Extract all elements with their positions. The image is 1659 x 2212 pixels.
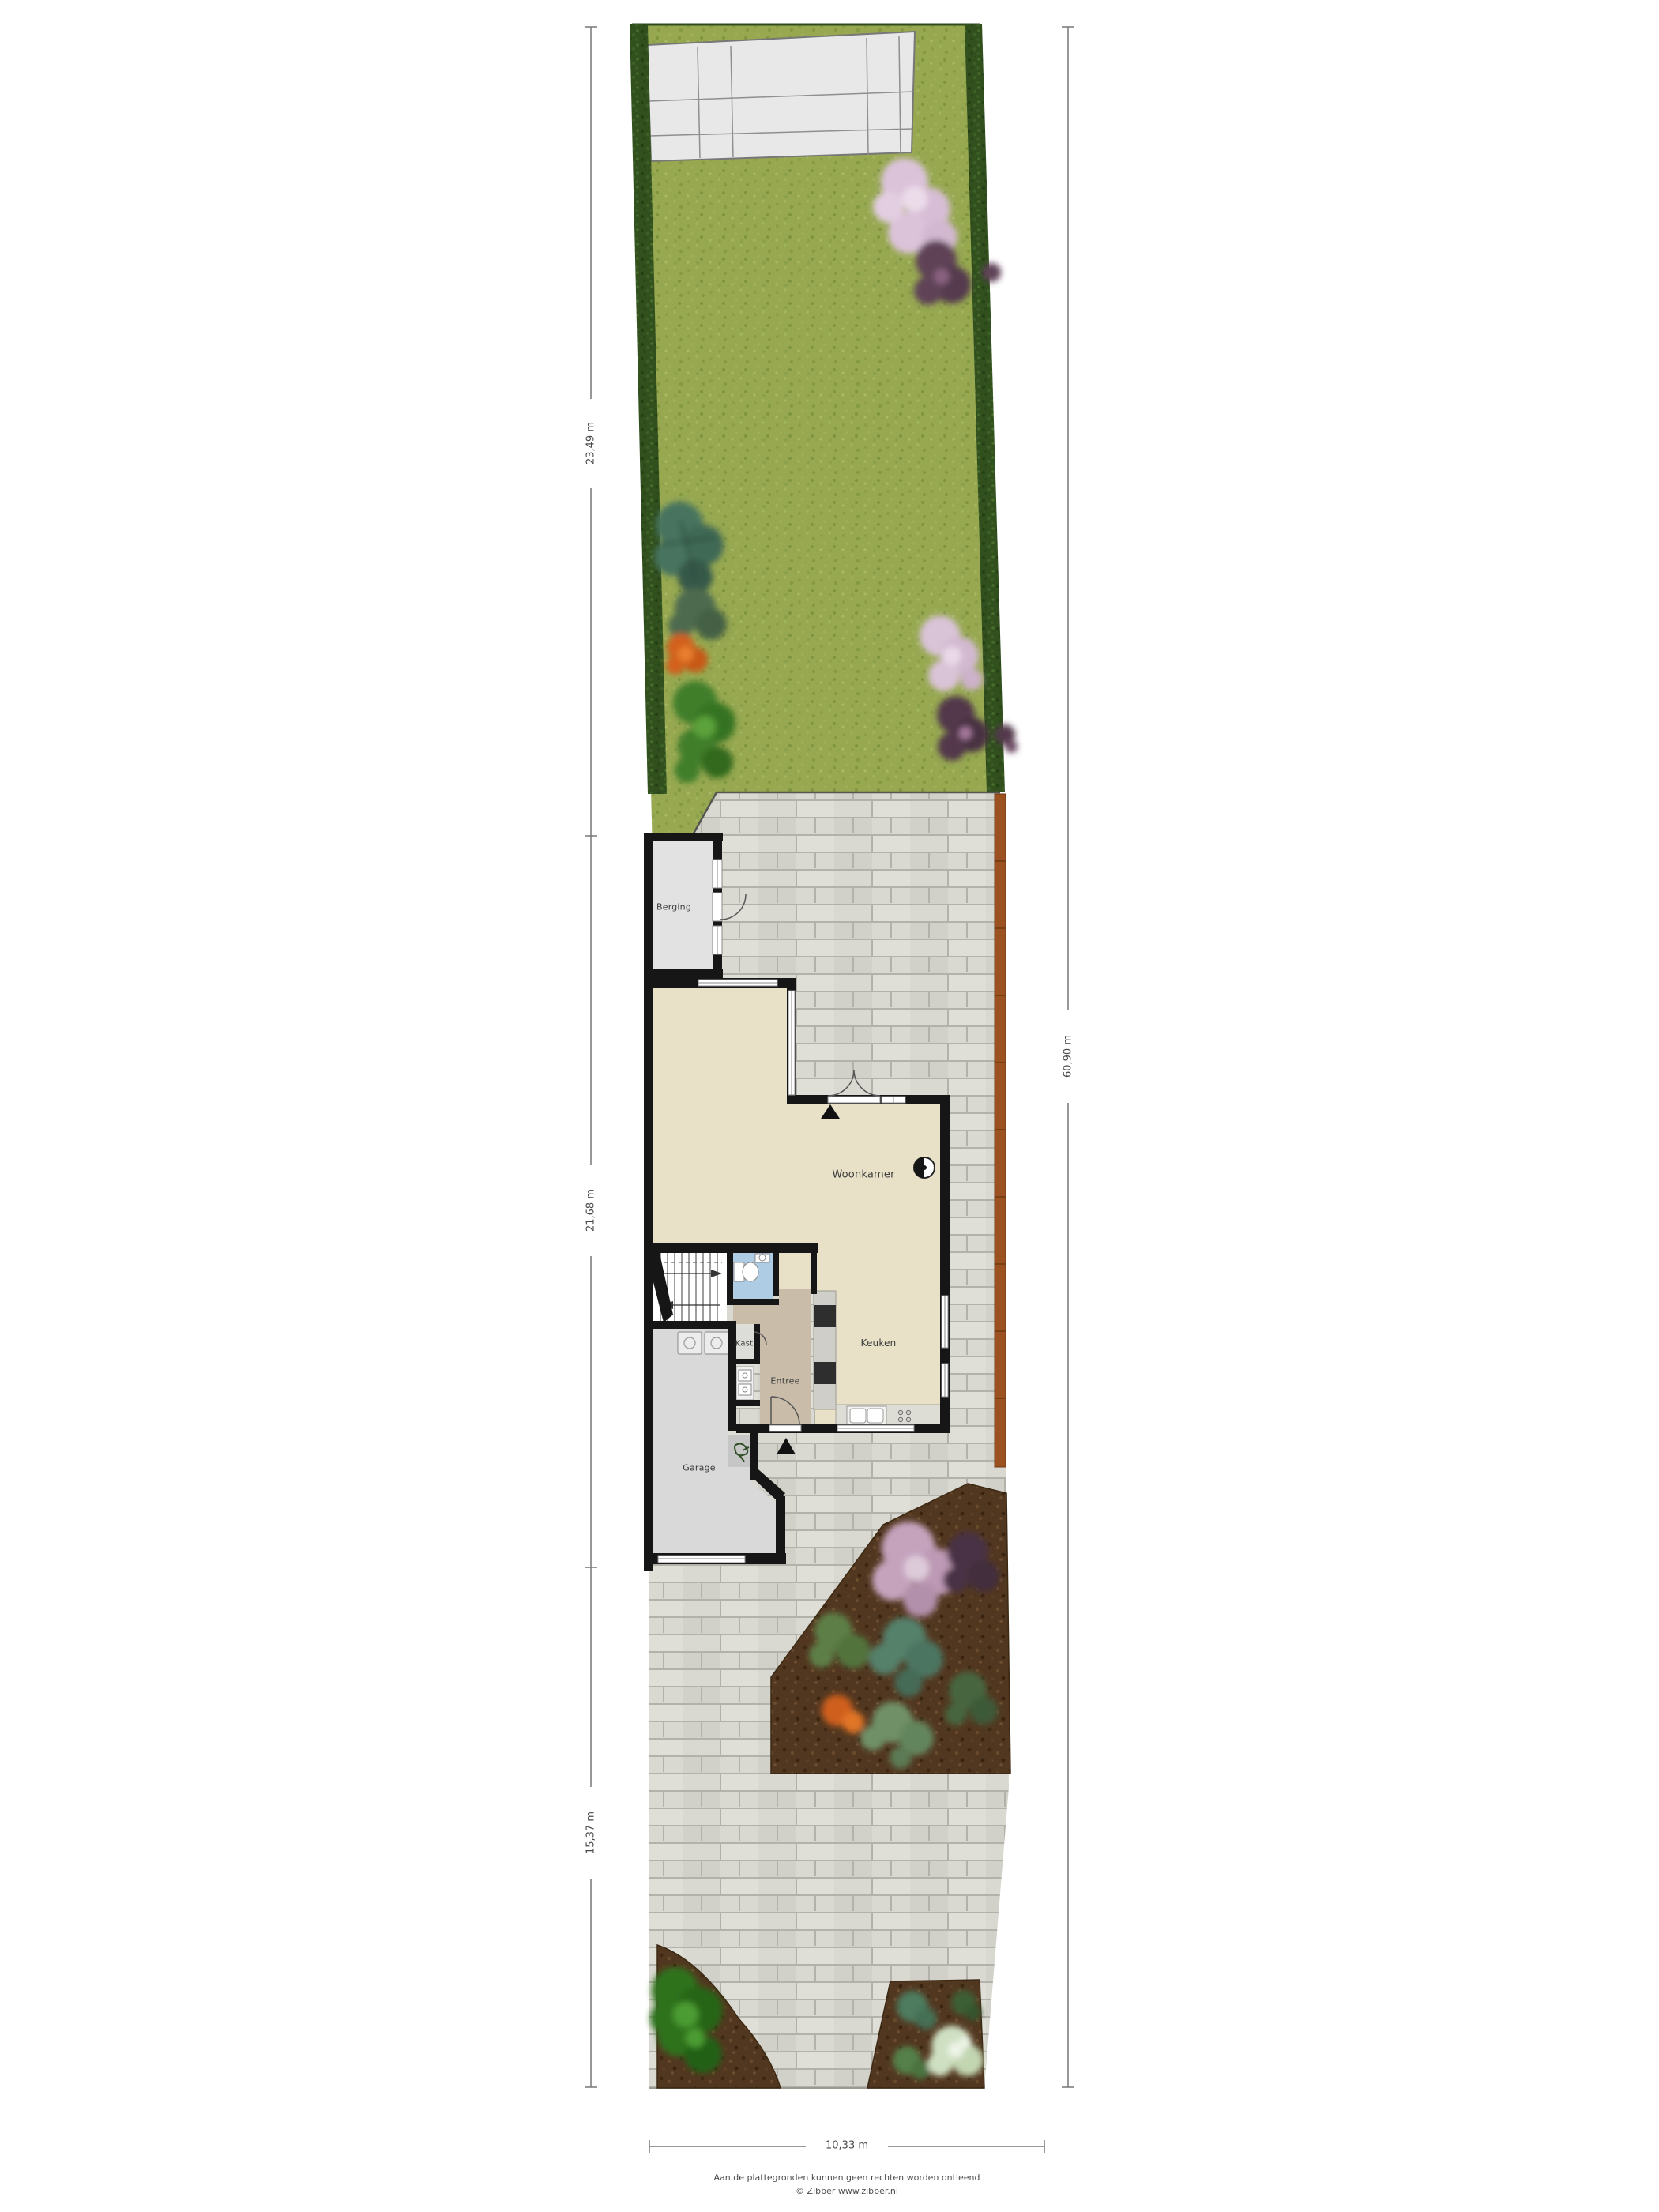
dimension-left-bottom: 15,37 m: [585, 1811, 597, 1854]
room-label-woonkamer: Woonkamer: [832, 1169, 894, 1181]
kitchen-tall-units: [814, 1291, 836, 1409]
dimension-bottom: 10,33 m: [826, 2140, 868, 2152]
site-plan-drawing: [0, 0, 1659, 2212]
dimension-left-middle: 21,68 m: [585, 1189, 597, 1232]
room-label-berging: Berging: [656, 902, 691, 912]
garden-fence: [995, 794, 1006, 1467]
room-label-kast: Kast: [735, 1340, 753, 1349]
site-plan: Berging Woonkamer Keuken Entree Kast Gar…: [0, 0, 1659, 2212]
dimension-left-top: 23,49 m: [585, 422, 597, 465]
footer-disclaimer: Aan de plattegronden kunnen geen rechten…: [714, 2171, 980, 2184]
stove-icon: [914, 1157, 935, 1178]
meter-cupboard: [736, 1367, 754, 1400]
kitchen-counter: [836, 1405, 942, 1427]
sink-icon: [850, 1409, 866, 1423]
patio-terrace: [647, 32, 915, 161]
footer-credit: © Zibber www.zibber.nl: [714, 2184, 980, 2198]
room-label-garage: Garage: [683, 1463, 715, 1473]
room-label-entree: Entree: [770, 1376, 799, 1386]
doormat-plant-icon: [728, 1435, 752, 1467]
room-label-keuken: Keuken: [861, 1337, 897, 1349]
toilet-bowl-icon: [743, 1262, 758, 1281]
footer: Aan de plattegronden kunnen geen rechten…: [714, 2171, 980, 2198]
dimension-right: 60,90 m: [1063, 1035, 1074, 1078]
